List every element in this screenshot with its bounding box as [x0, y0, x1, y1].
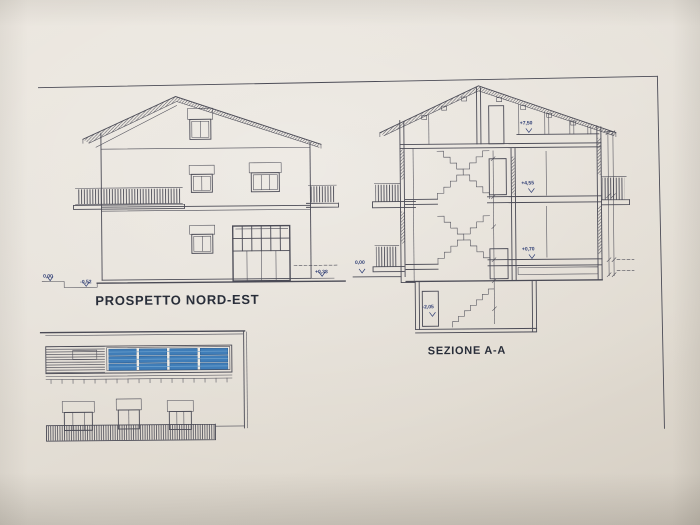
- elevation-window-mid-right: [249, 163, 281, 192]
- sheet-border: [38, 76, 664, 433]
- elevation-title: PROSPETTO NORD-EST: [95, 292, 259, 308]
- elevation-balcony-right: [306, 185, 338, 207]
- partial-band: [46, 345, 232, 384]
- level-annotation-section-minus205: -2,05: [422, 305, 433, 310]
- section-title: SEZIONE A-A: [428, 345, 506, 358]
- level-annotation-section-zero: 0,00: [355, 261, 365, 266]
- solar-panel-grid: [107, 347, 230, 371]
- partial-elevation-drawing: [41, 331, 248, 441]
- section-balcony-right: [601, 177, 629, 205]
- elevation-nordest-drawing: [41, 95, 346, 288]
- partial-railing: [46, 424, 244, 441]
- elevation-walls: [101, 131, 311, 280]
- section-balcony-left-lower: [373, 246, 404, 272]
- level-annotation-section-plus070: +0,70: [522, 247, 535, 252]
- plan-linework: [0, 0, 700, 525]
- section-floor-slabs: [400, 143, 602, 282]
- level-annotation-elevation-plus038: +0,38: [315, 270, 328, 275]
- level-annotation-section-plus750: +7,50: [520, 121, 533, 126]
- level-annotation-elevation-zero: 0,00: [43, 275, 53, 280]
- section-aa-drawing: [351, 85, 634, 334]
- elevation-roof: [83, 95, 321, 150]
- section-roof: [379, 85, 615, 145]
- elevation-window-ground: [190, 225, 215, 253]
- level-annotation-elevation-minus052: -0,52: [80, 280, 91, 285]
- level-annotation-section-plus455: +4,55: [521, 181, 534, 186]
- section-level-ticks: [358, 128, 536, 317]
- paper-sheet: PROSPETTO NORD-EST SEZIONE A-A 0,00 -0,5…: [0, 0, 700, 525]
- elevation-window-attic: [188, 108, 213, 139]
- photographed-drawing-sheet: PROSPETTO NORD-EST SEZIONE A-A 0,00 -0,5…: [0, 0, 700, 525]
- section-stairs: [437, 151, 495, 327]
- elevation-balcony-left: [73, 187, 184, 209]
- elevation-glazed-door: [233, 226, 290, 281]
- elevation-window-mid-left: [189, 165, 214, 192]
